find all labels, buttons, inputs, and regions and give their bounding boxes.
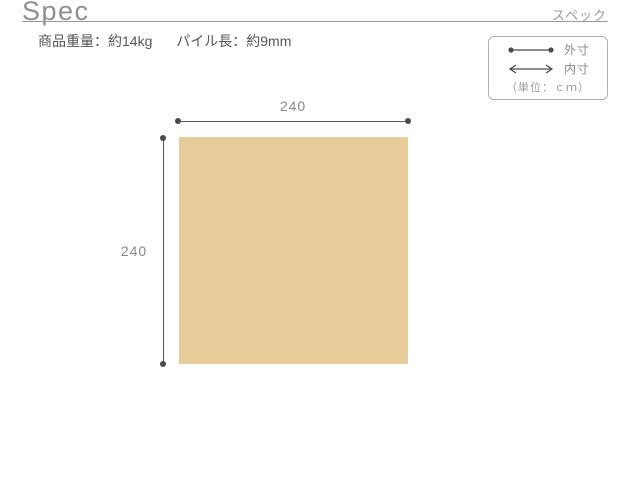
- spec-pile-length: パイル長：約9mm: [176, 33, 291, 49]
- dot-icon: [405, 118, 411, 124]
- dot-icon: [175, 118, 181, 124]
- width-dimension-line: [178, 121, 408, 122]
- rug-shape: [179, 137, 408, 364]
- inner-dimension-label: 内寸: [564, 60, 590, 77]
- legend-row-outer: 外寸: [506, 41, 590, 58]
- width-dimension-value: 240: [178, 98, 408, 114]
- unit-note: （単位：ｃｍ）: [506, 79, 590, 95]
- outer-dimension-icon: [506, 44, 556, 56]
- height-dimension-value: 240: [114, 243, 154, 259]
- section-title: Spec: [22, 0, 90, 27]
- header-divider: [22, 21, 608, 22]
- product-specs-text: 商品重量：約14kg パイル長：約9mm: [38, 31, 291, 51]
- dimension-legend-box: 外寸 内寸 （単位：ｃｍ）: [488, 36, 608, 100]
- outer-dimension-label: 外寸: [564, 41, 590, 58]
- inner-dimension-icon: [506, 63, 556, 75]
- spec-weight: 商品重量：約14kg: [38, 33, 152, 49]
- legend-row-inner: 内寸: [506, 60, 590, 77]
- spec-section: Spec スペック 商品重量：約14kg パイル長：約9mm 外寸: [0, 0, 625, 498]
- dot-icon: [160, 135, 166, 141]
- height-dimension-line: [163, 138, 164, 364]
- dot-icon: [160, 361, 166, 367]
